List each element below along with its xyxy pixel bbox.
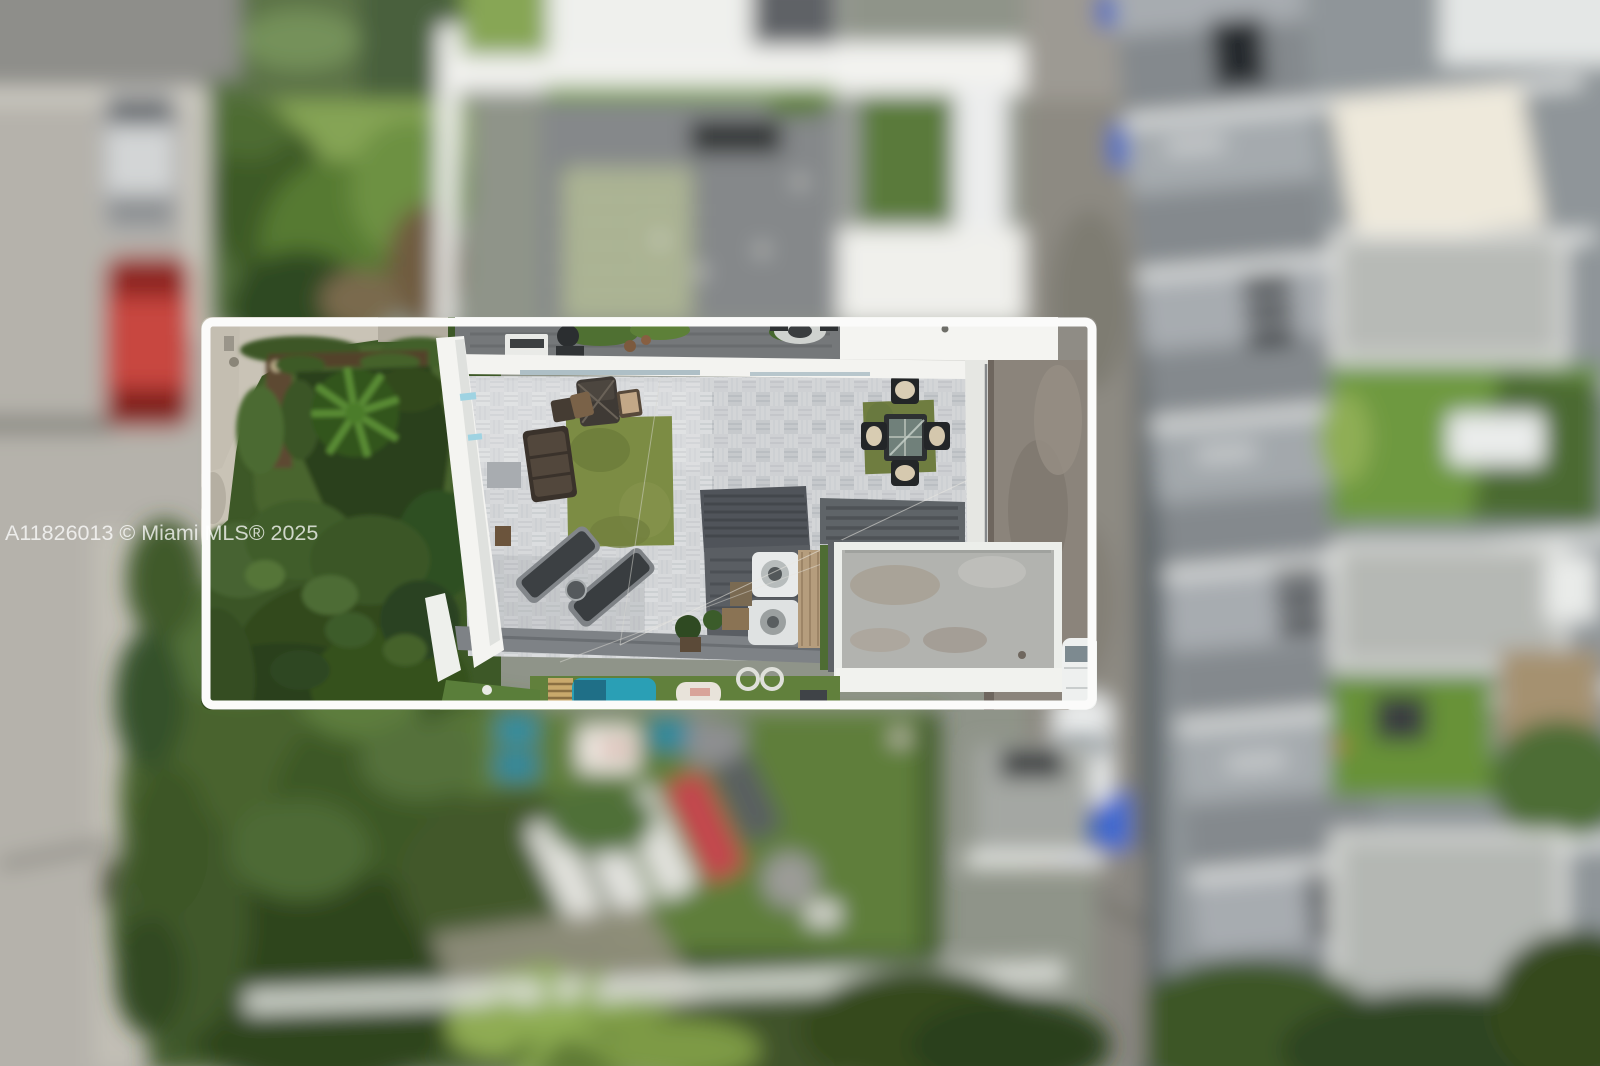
svg-text:A11826013 © Miami MLS® 2025: A11826013 © Miami MLS® 2025 bbox=[5, 521, 318, 545]
